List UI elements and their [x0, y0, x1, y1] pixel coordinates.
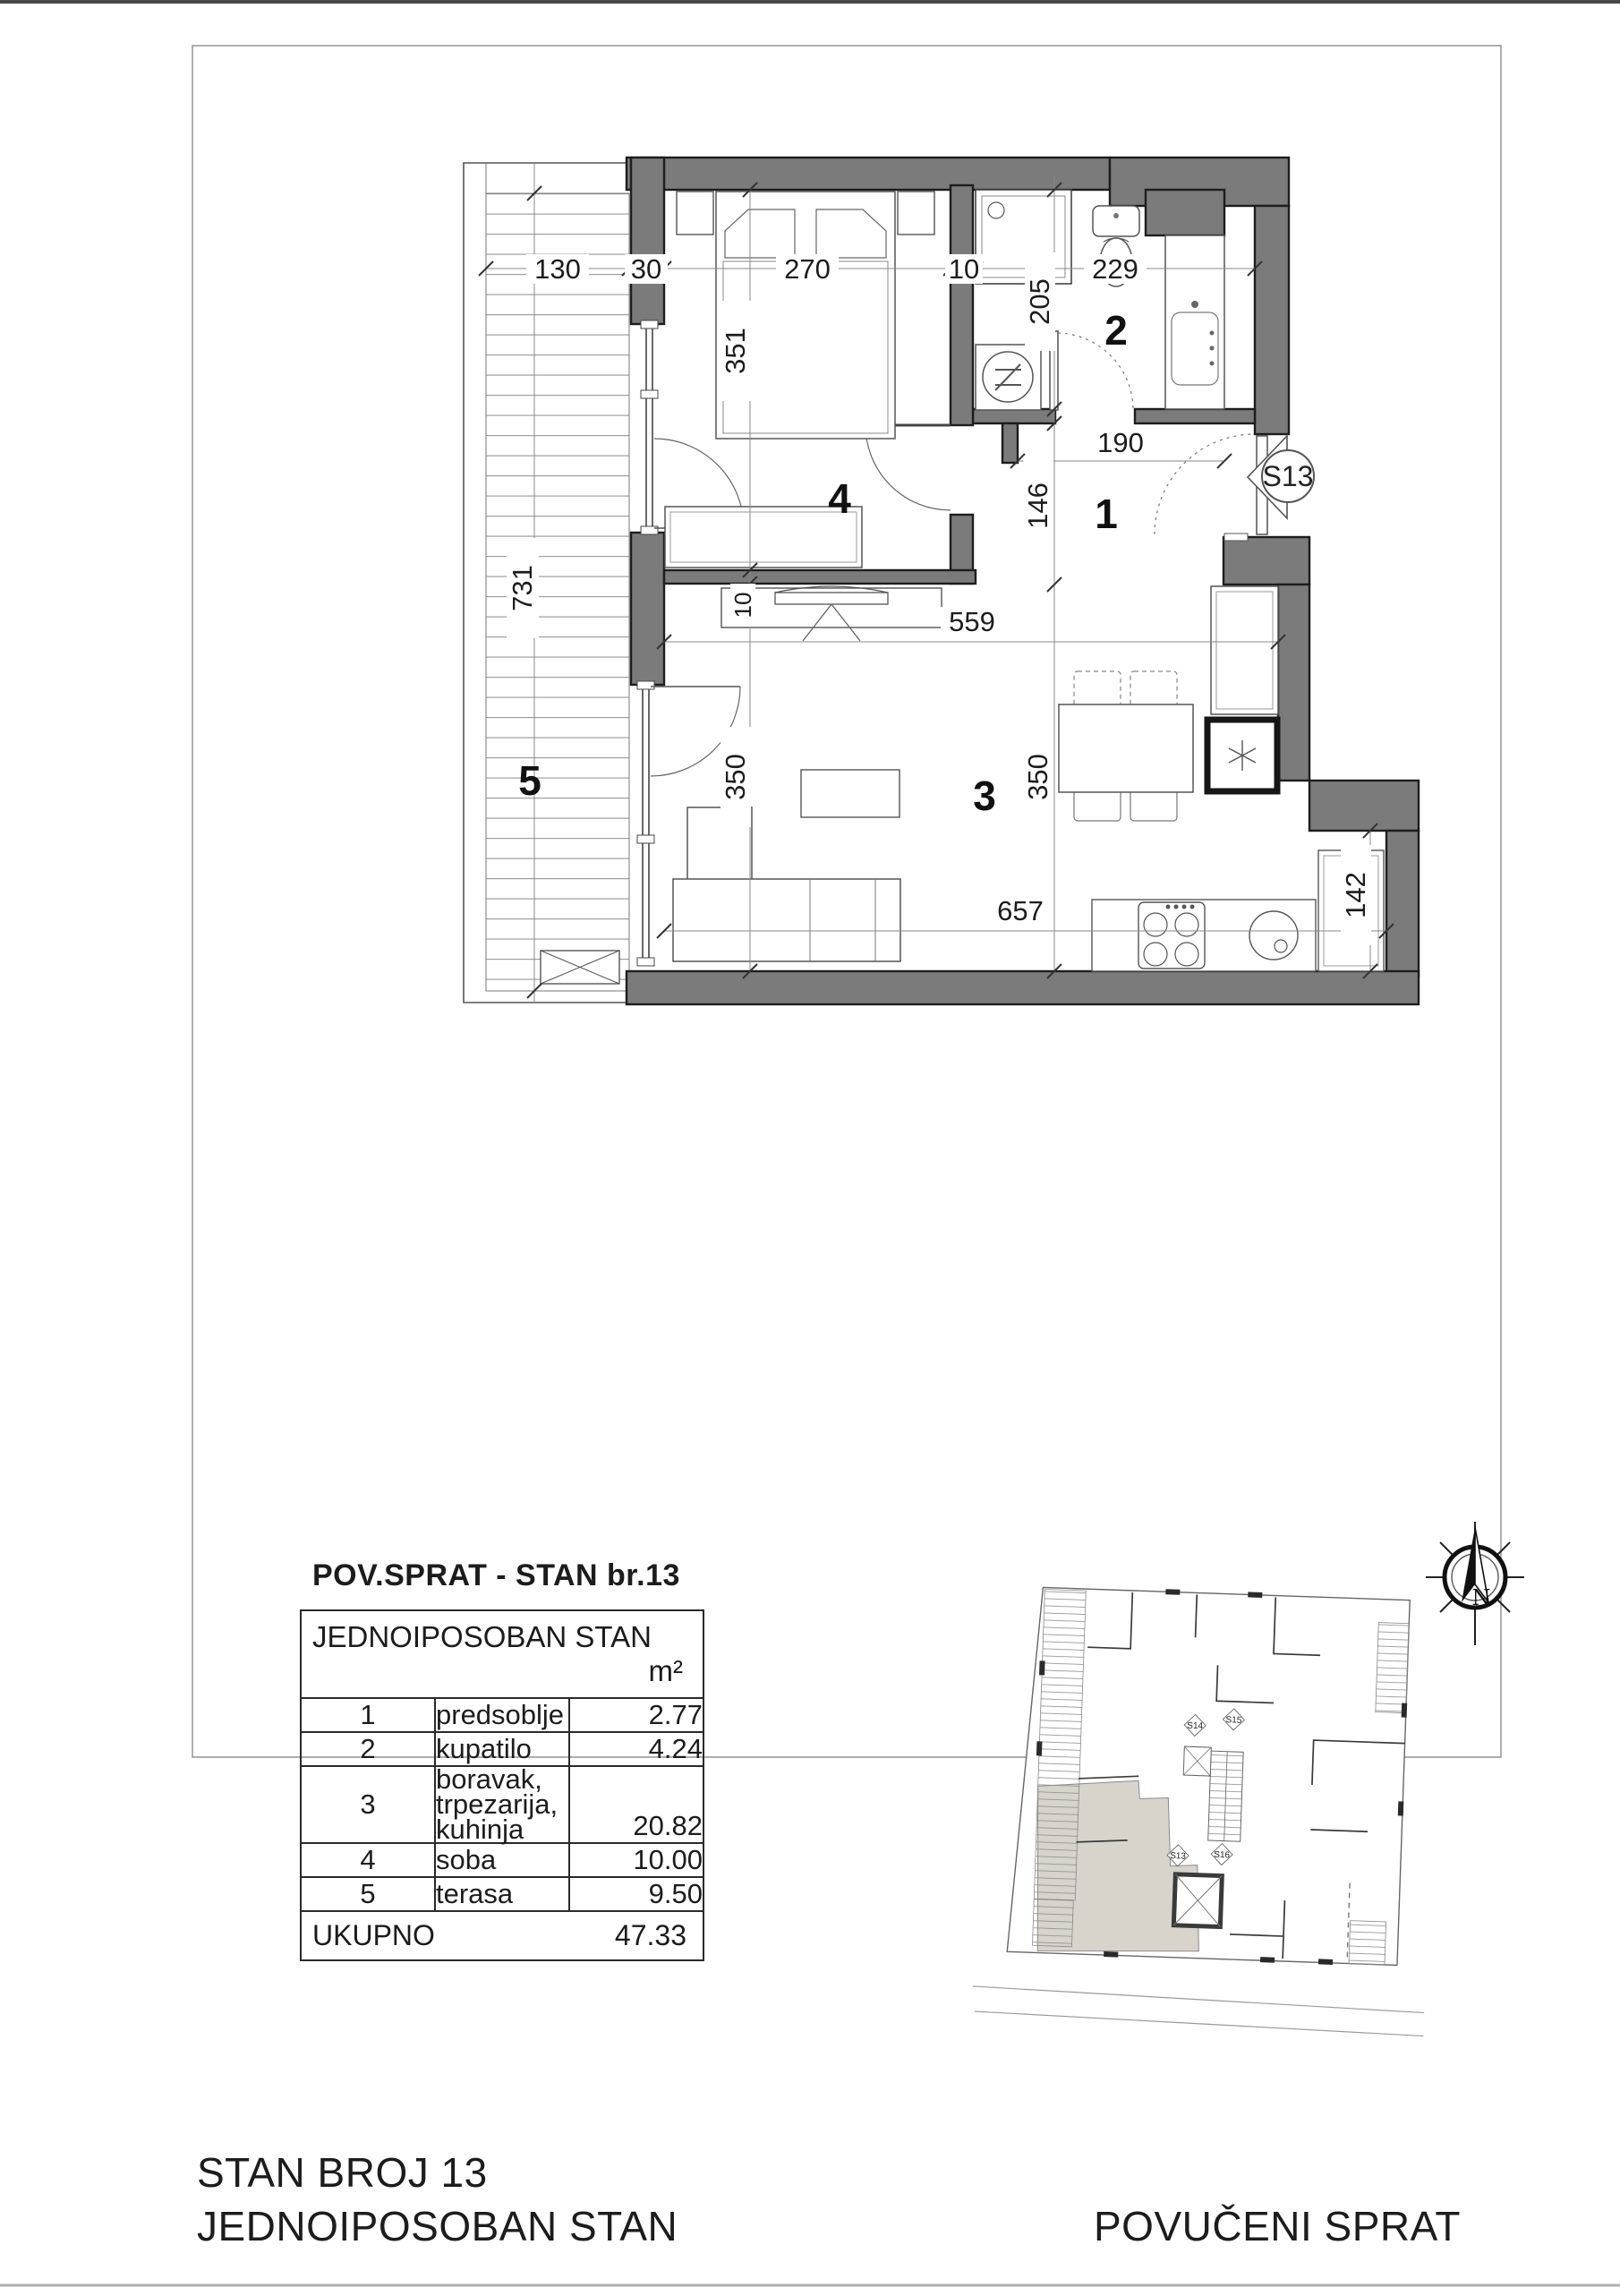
area-table-block: POV.SPRAT - STAN br.13 JEDNOIPOSOBAN STA… — [300, 1558, 704, 1961]
vent-shaft — [1207, 720, 1277, 791]
dining-table — [1059, 704, 1193, 792]
dim-hall-depth: 146 — [1022, 482, 1053, 529]
total-label: UKUPNO — [312, 1919, 435, 1952]
nightstand-right — [898, 192, 934, 235]
room-label-terrace: 5 — [518, 757, 541, 804]
wall-bath-bottom-right — [1135, 409, 1255, 423]
keyplan-ground-lines — [972, 1986, 1425, 2036]
key-plan: S14 S15 S13 S16 — [972, 1583, 1439, 2036]
wall-bath-bottom-left — [973, 409, 1055, 423]
wall-bedroom-living — [664, 570, 976, 584]
floor-plan: 130 30 270 10 229 351 731 205 146 350 — [464, 158, 1419, 1004]
keyplan-terrace-right — [1376, 1623, 1409, 1713]
dim-fridge-niche: 142 — [1340, 872, 1371, 918]
row-num: 4 — [301, 1843, 435, 1877]
dim-living-depth-left: 350 — [720, 754, 751, 800]
keyplan-stairs — [1208, 1751, 1243, 1841]
table-row: 2 kupatilo 4.24 — [301, 1732, 703, 1766]
dim-terrace-length: 731 — [507, 565, 538, 611]
keyplan-elevator-bottom — [1173, 1874, 1222, 1927]
dim-bedroom-width: 270 — [784, 253, 831, 285]
row-num: 1 — [301, 1698, 435, 1732]
dim-terrace-width: 130 — [534, 253, 581, 285]
dim-hall-width: 190 — [1097, 427, 1144, 458]
wall-hall-stub — [1002, 423, 1018, 463]
keyplan-marker-s16: S16 — [1214, 1850, 1231, 1861]
table-row: 5 terasa 9.50 — [301, 1877, 703, 1911]
table-total-row: UKUPNO 47.33 — [301, 1911, 703, 1960]
terrace — [464, 163, 636, 1003]
area-table-title: POV.SPRAT - STAN br.13 — [312, 1558, 704, 1593]
row-name: soba — [435, 1843, 569, 1877]
washing-machine — [976, 345, 1041, 410]
row-area: 4.24 — [569, 1732, 703, 1766]
row-num: 3 — [301, 1766, 435, 1843]
row-name: terasa — [435, 1877, 569, 1911]
nightstand-left — [677, 192, 713, 235]
wall-left-upper — [631, 158, 664, 324]
keyplan-terrace-left2 — [1032, 1899, 1073, 1947]
keyplan-marker-s14: S14 — [1187, 1721, 1204, 1732]
row-name: boravak, trpezarija, kuhinja — [435, 1766, 569, 1843]
row-area: 9.50 — [569, 1877, 703, 1911]
tall-cabinet — [1211, 586, 1278, 714]
wall-right-lower — [1386, 831, 1419, 976]
footer-apartment-number: STAN BROJ 13 — [197, 2148, 488, 2197]
room-label-hall: 1 — [1095, 491, 1118, 537]
table-header-row: JEDNOIPOSOBAN STAN m² — [301, 1610, 703, 1698]
dim-wall-mid: 10 — [949, 253, 979, 285]
dim-kitchen-width: 657 — [997, 895, 1044, 926]
kitchen-sink — [1249, 911, 1298, 960]
drawing-sheet: 130 30 270 10 229 351 731 205 146 350 — [0, 0, 1620, 2292]
row-num: 2 — [301, 1732, 435, 1766]
row-name: predsoblje — [435, 1698, 569, 1732]
table-row: 1 predsoblje 2.77 — [301, 1698, 703, 1732]
dim-bath-depth: 205 — [1024, 278, 1055, 325]
row-area: 2.77 — [569, 1698, 703, 1732]
wall-right-upper — [1255, 206, 1289, 434]
keyplan-elevator-top — [1183, 1746, 1211, 1776]
coffee-table — [801, 770, 900, 817]
table-row: 4 soba 10.00 — [301, 1843, 703, 1877]
dim-wall-inner: 10 — [729, 593, 756, 619]
row-num: 5 — [301, 1877, 435, 1911]
stove — [1138, 902, 1205, 969]
compass-north-label: N — [1472, 1585, 1491, 1610]
dim-wall-top: 30 — [631, 253, 661, 285]
unit-marker-label: S13 — [1263, 460, 1314, 492]
vanity-sink — [1165, 235, 1224, 409]
shower — [976, 190, 1071, 284]
entry-door — [1155, 434, 1267, 541]
room-label-bedroom: 4 — [828, 475, 851, 522]
apartment-type-label: JEDNOIPOSOBAN STAN — [312, 1620, 652, 1654]
wall-entry-band — [1224, 537, 1309, 585]
table-row: 3 boravak, trpezarija, kuhinja 20.82 — [301, 1766, 703, 1843]
keyplan-marker-s13: S13 — [1170, 1851, 1187, 1862]
row-area: 20.82 — [569, 1766, 703, 1843]
row-name: kupatilo — [435, 1732, 569, 1766]
dining-set — [1059, 671, 1193, 821]
dim-bath-width: 229 — [1092, 253, 1138, 285]
terrace-planter-box — [541, 951, 619, 984]
wall-vanity-block — [1146, 190, 1224, 235]
row-area: 10.00 — [569, 1843, 703, 1877]
screen-top-edge — [0, 0, 1620, 4]
wall-bedroom-right-a — [951, 185, 973, 425]
footer-floor-name: POVUČENI SPRAT — [1094, 2202, 1461, 2250]
room-label-living: 3 — [973, 772, 996, 819]
keyplan-marker-s15: S15 — [1225, 1715, 1242, 1726]
dim-living-depth-right: 350 — [1022, 754, 1053, 800]
compass: N — [1426, 1522, 1524, 1645]
keyplan-terrace-bottom — [1349, 1921, 1386, 1965]
footer-apartment-type: JEDNOIPOSOBAN STAN — [197, 2202, 678, 2250]
wall-right-mid — [1278, 585, 1309, 781]
dim-bedroom-depth: 351 — [720, 328, 751, 374]
wall-top — [627, 158, 1110, 190]
unit-label: m² — [649, 1654, 695, 1688]
area-table: JEDNOIPOSOBAN STAN m² 1 predsoblje 2.77 … — [300, 1609, 704, 1961]
total-area: 47.33 — [615, 1919, 695, 1952]
bedroom-furniture — [665, 192, 934, 568]
dim-living-width: 559 — [949, 606, 995, 637]
room-label-bath: 2 — [1104, 307, 1128, 354]
sofa — [673, 807, 900, 961]
wall-step — [1309, 781, 1419, 831]
wall-left-mid — [631, 533, 664, 685]
